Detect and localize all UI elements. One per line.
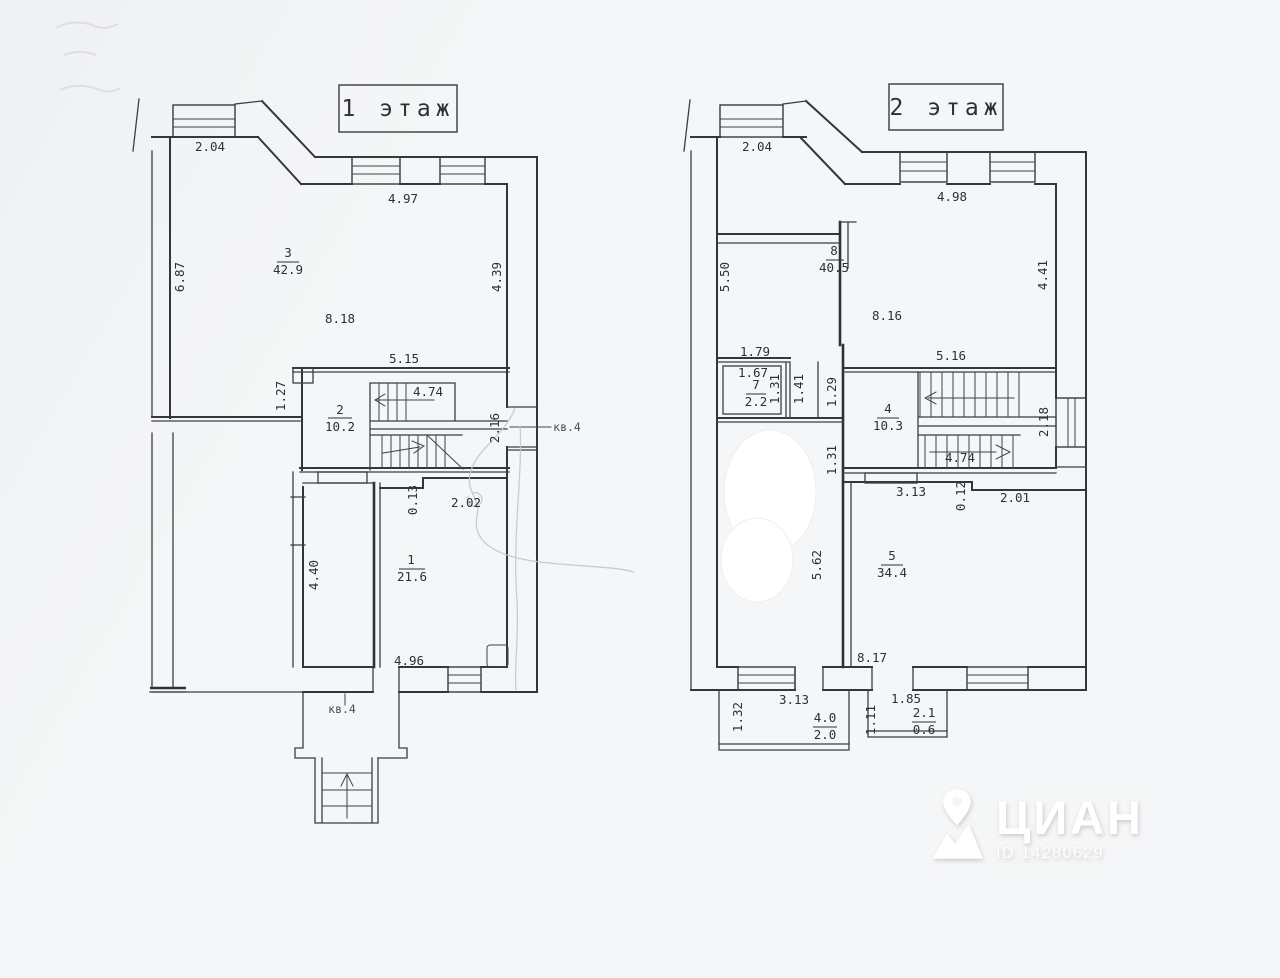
room5-number: 5 <box>888 548 896 563</box>
dim-2.16: 2.16 <box>487 413 502 443</box>
dim-0.13: 0.13 <box>405 485 420 515</box>
dim-4.41: 4.41 <box>1035 260 1050 290</box>
pen-scribbles <box>467 408 634 690</box>
dim-8.17: 8.17 <box>857 650 887 665</box>
room4-area: 10.3 <box>873 418 903 433</box>
floorplan-scan: 1 этаж <box>0 0 1280 978</box>
room1-area: 21.6 <box>397 569 427 584</box>
balcony2-area: 0.6 <box>913 722 936 737</box>
floor1-entrance-steps <box>315 758 378 823</box>
balcony2-number: 2.1 <box>913 705 936 720</box>
dim-4.74-f2: 4.74 <box>945 450 975 465</box>
dim-3.13-b: 3.13 <box>779 692 809 707</box>
dim-1.85: 1.85 <box>891 691 921 706</box>
room3-area: 42.9 <box>273 262 303 277</box>
room2-number: 2 <box>336 402 344 417</box>
room8-area: 40.5 <box>819 260 849 275</box>
floor1-title: 1 этаж <box>341 96 454 122</box>
dim-2.04-f2: 2.04 <box>742 139 772 154</box>
balcony1-number: 4.0 <box>814 710 837 725</box>
dim-1.11: 1.11 <box>863 705 878 735</box>
dim-0.12: 0.12 <box>953 481 968 511</box>
floor2-title: 2 этаж <box>889 95 1002 121</box>
room5-area: 34.4 <box>877 565 907 580</box>
room3-number: 3 <box>284 245 292 260</box>
dim-2.01: 2.01 <box>1000 490 1030 505</box>
dim-4.39: 4.39 <box>489 262 504 292</box>
balcony1-area: 2.0 <box>814 727 837 742</box>
kv4-porch-label: кв.4 <box>328 702 356 716</box>
cian-id-text: ID 14280629 <box>996 845 1144 863</box>
cian-pin-icon <box>928 785 986 863</box>
room7-number: 7 <box>752 377 760 392</box>
room2-area: 10.2 <box>325 419 355 434</box>
dim-1.41: 1.41 <box>791 374 806 404</box>
dim-4.96: 4.96 <box>394 653 424 668</box>
floor2-plan: 2 этаж 2.04 4. <box>684 84 1086 750</box>
dim-4.40: 4.40 <box>306 560 321 590</box>
dim-8.16: 8.16 <box>872 308 902 323</box>
dim-4.74: 4.74 <box>413 384 443 399</box>
pencil-marks <box>56 23 120 92</box>
dim-5.16: 5.16 <box>936 348 966 363</box>
dim-6.87: 6.87 <box>172 262 187 292</box>
dim-2.02: 2.02 <box>451 495 481 510</box>
cian-watermark: ЦИАН ID 14280629 <box>928 785 1144 863</box>
dim-5.62: 5.62 <box>809 550 824 580</box>
dim-1.31-b: 1.31 <box>824 445 839 475</box>
dim-1.79: 1.79 <box>740 344 770 359</box>
room4-number: 4 <box>884 401 892 416</box>
dim-1.29: 1.29 <box>824 377 839 407</box>
dim-4.97: 4.97 <box>388 191 418 206</box>
dim-2.04: 2.04 <box>195 139 225 154</box>
dim-2.18: 2.18 <box>1036 407 1051 437</box>
cian-brand-text: ЦИАН <box>996 798 1144 838</box>
fixture <box>487 645 508 667</box>
dim-1.32: 1.32 <box>730 702 745 732</box>
dim-1.31-a: 1.31 <box>767 374 782 404</box>
dim-5.50: 5.50 <box>717 262 732 292</box>
floor1-plan: 1 этаж <box>133 85 634 823</box>
whiteout-blob <box>721 430 816 602</box>
dim-3.13-a: 3.13 <box>896 484 926 499</box>
dim-8.18: 8.18 <box>325 311 355 326</box>
dim-1.27: 1.27 <box>273 381 288 411</box>
room8-number: 8 <box>830 243 838 258</box>
dim-5.15: 5.15 <box>389 351 419 366</box>
room1-number: 1 <box>407 552 415 567</box>
kv4-door-label: кв.4 <box>553 420 581 434</box>
dim-4.98: 4.98 <box>937 189 967 204</box>
room7-area: 2.2 <box>745 394 768 409</box>
